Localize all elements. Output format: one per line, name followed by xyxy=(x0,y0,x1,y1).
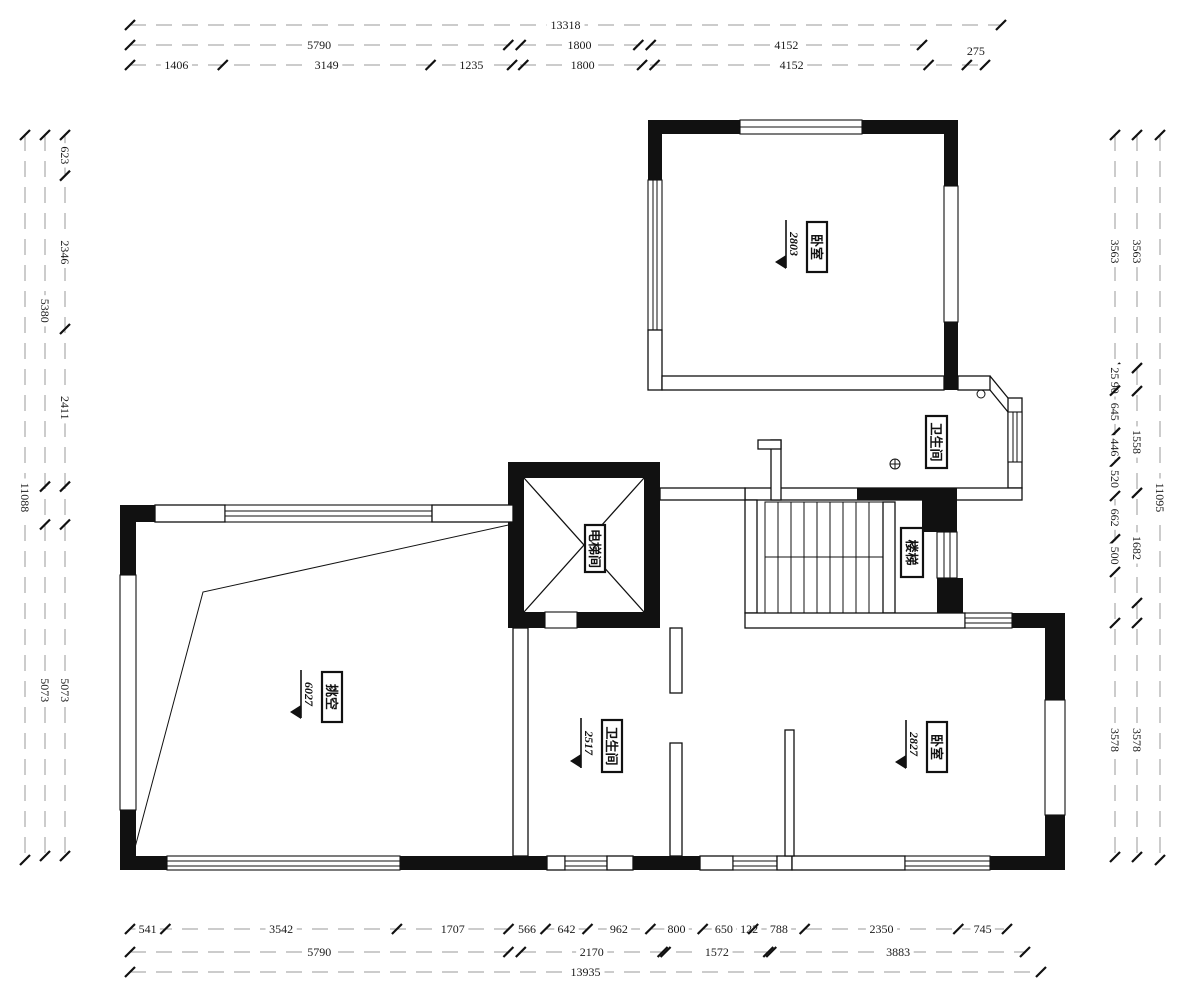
dimension-chain-2: 14063149123518004152275 xyxy=(125,44,990,72)
dimension-chain-10: 3563155816823578 xyxy=(1130,130,1144,862)
svg-text:800: 800 xyxy=(668,922,686,936)
svg-text:13318: 13318 xyxy=(551,18,581,32)
svg-text:6027: 6027 xyxy=(302,682,316,707)
svg-text:788: 788 xyxy=(770,922,788,936)
room-label-bathroom-upper: 卫生间 xyxy=(926,416,947,468)
svg-text:11095: 11095 xyxy=(1153,483,1167,513)
svg-text:5380: 5380 xyxy=(38,299,52,323)
floor-drain-icon xyxy=(890,459,900,469)
svg-text:5073: 5073 xyxy=(38,678,52,702)
svg-text:645: 645 xyxy=(1108,403,1122,421)
svg-text:1707: 1707 xyxy=(441,922,465,936)
svg-text:2803: 2803 xyxy=(787,231,801,256)
floor-plan-canvas: 卧室 2803 卫生间 电梯间 楼梯 挑空 6027 卫生间 2517 卧室 2… xyxy=(0,0,1200,985)
svg-text:1800: 1800 xyxy=(571,58,595,72)
svg-text:挑空: 挑空 xyxy=(324,684,339,710)
room-label-bedroom-2803: 卧室 2803 xyxy=(775,220,827,272)
dimension-chain-4: 5790217015723883 xyxy=(125,945,1030,959)
svg-text:745: 745 xyxy=(974,922,992,936)
elevator-shaft xyxy=(508,462,745,628)
svg-text:1800: 1800 xyxy=(568,38,592,52)
svg-text:5073: 5073 xyxy=(58,678,72,702)
svg-text:3578: 3578 xyxy=(1108,728,1122,752)
svg-text:卫生间: 卫生间 xyxy=(604,726,619,765)
svg-text:623: 623 xyxy=(58,146,72,164)
svg-text:3883: 3883 xyxy=(886,945,910,959)
svg-text:2170: 2170 xyxy=(580,945,604,959)
svg-text:5790: 5790 xyxy=(307,945,331,959)
room-label-bedroom-2827: 卧室 2827 xyxy=(895,720,947,772)
dimension-chain-1: 579018004152 xyxy=(125,38,927,52)
dimension-chain-7: 53805073 xyxy=(38,130,52,861)
svg-text:2346: 2346 xyxy=(58,240,72,264)
svg-text:1558: 1558 xyxy=(1130,430,1144,454)
svg-text:2517: 2517 xyxy=(582,730,596,756)
dimension-chain-5: 13935 xyxy=(125,965,1046,979)
lower-bathroom-walls xyxy=(513,628,792,870)
dimension-chain-0: 13318 xyxy=(125,18,1006,32)
svg-text:5790: 5790 xyxy=(307,38,331,52)
svg-text:电梯间: 电梯间 xyxy=(587,529,602,568)
svg-text:2411: 2411 xyxy=(58,396,72,420)
svg-text:卧室: 卧室 xyxy=(809,234,824,260)
dimension-chain-11: 11095 xyxy=(1153,130,1167,865)
lower-bedroom-walls xyxy=(785,613,1065,870)
svg-text:500: 500 xyxy=(1108,547,1122,565)
room-label-void-6027: 挑空 6027 xyxy=(290,670,342,722)
svg-text:662: 662 xyxy=(1108,509,1122,527)
svg-text:275: 275 xyxy=(967,44,985,58)
svg-text:1406: 1406 xyxy=(164,58,188,72)
svg-text:541: 541 xyxy=(139,922,157,936)
svg-text:3563: 3563 xyxy=(1108,240,1122,264)
svg-text:2827: 2827 xyxy=(907,731,921,757)
svg-text:3578: 3578 xyxy=(1130,728,1144,752)
room-label-elevator: 电梯间 xyxy=(585,525,605,572)
svg-text:楼梯: 楼梯 xyxy=(904,539,919,565)
dimension-chain-8: 11088 xyxy=(18,130,32,865)
room-label-stairs: 楼梯 xyxy=(901,528,923,577)
dimension-chain-6: 623234624115073 xyxy=(58,130,72,861)
svg-text:3149: 3149 xyxy=(315,58,339,72)
svg-text:3563: 3563 xyxy=(1130,240,1144,264)
svg-text:1572: 1572 xyxy=(705,945,729,959)
dimension-chain-3: 541354217075666429628006501227882350745 xyxy=(125,922,1012,936)
svg-text:3542: 3542 xyxy=(269,922,293,936)
dimension-chain-9: 3563256906454465206625003578 xyxy=(1108,130,1122,862)
svg-text:520: 520 xyxy=(1108,470,1122,488)
svg-text:1235: 1235 xyxy=(459,58,483,72)
svg-text:4152: 4152 xyxy=(780,58,804,72)
floor-plan-drawing: 卧室 2803 卫生间 电梯间 楼梯 挑空 6027 卫生间 2517 卧室 2… xyxy=(0,0,1200,985)
svg-text:962: 962 xyxy=(610,922,628,936)
svg-text:650: 650 xyxy=(715,922,733,936)
svg-text:446: 446 xyxy=(1108,438,1122,456)
svg-text:11088: 11088 xyxy=(18,483,32,513)
upper-bedroom-walls xyxy=(648,120,958,390)
svg-text:卫生间: 卫生间 xyxy=(929,422,944,461)
svg-text:566: 566 xyxy=(518,922,536,936)
svg-text:4152: 4152 xyxy=(774,38,798,52)
svg-text:13935: 13935 xyxy=(571,965,601,979)
svg-text:1682: 1682 xyxy=(1130,536,1144,560)
svg-text:642: 642 xyxy=(558,922,576,936)
room-label-bathroom-2517: 卫生间 2517 xyxy=(570,718,622,772)
svg-text:2350: 2350 xyxy=(869,922,893,936)
svg-text:卧室: 卧室 xyxy=(929,734,944,760)
